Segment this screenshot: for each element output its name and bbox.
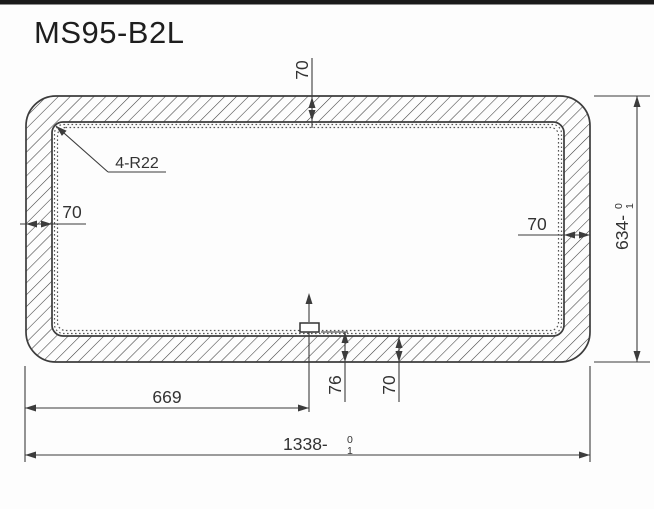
dimension-label: 70: [527, 214, 547, 234]
top-edge-bar: [0, 0, 654, 5]
marker-rectangle: [300, 323, 319, 332]
dimension-label: 70: [379, 375, 399, 395]
corner-radius-label: 4-R22: [115, 155, 159, 172]
arrowhead-up: [634, 96, 641, 107]
dim-overall-height: 634- 0 1: [594, 96, 650, 362]
dimension-label: 70: [62, 202, 82, 222]
leader-line: [56, 126, 108, 172]
drawing-page: MS95-B2L 70 4-R22 70 70: [0, 0, 654, 509]
dimension-label: 634-: [612, 215, 632, 250]
dimension-label: 1338-: [283, 434, 328, 454]
center-marker: [300, 293, 348, 332]
arrowhead-up: [306, 293, 313, 304]
drawing-title: MS95-B2L: [34, 15, 184, 50]
technical-drawing: MS95-B2L 70 4-R22 70 70: [0, 0, 654, 509]
tube-wall-section: [26, 96, 590, 362]
arrowhead-right: [298, 405, 309, 412]
dimension-label: 669: [152, 387, 181, 407]
arrowhead-down: [634, 351, 641, 362]
dimension-label: 76: [325, 375, 345, 394]
arrowhead-right: [579, 452, 590, 459]
dim-overall-width: 1338- 0 1: [25, 366, 590, 462]
dimension-label: 70: [292, 60, 312, 80]
tolerance-lower: 1: [624, 203, 636, 209]
arrowhead-left: [25, 452, 36, 459]
arrowhead-left: [25, 405, 36, 412]
tolerance-lower: 1: [347, 445, 353, 457]
leader-corner-radius: 4-R22: [56, 126, 166, 172]
